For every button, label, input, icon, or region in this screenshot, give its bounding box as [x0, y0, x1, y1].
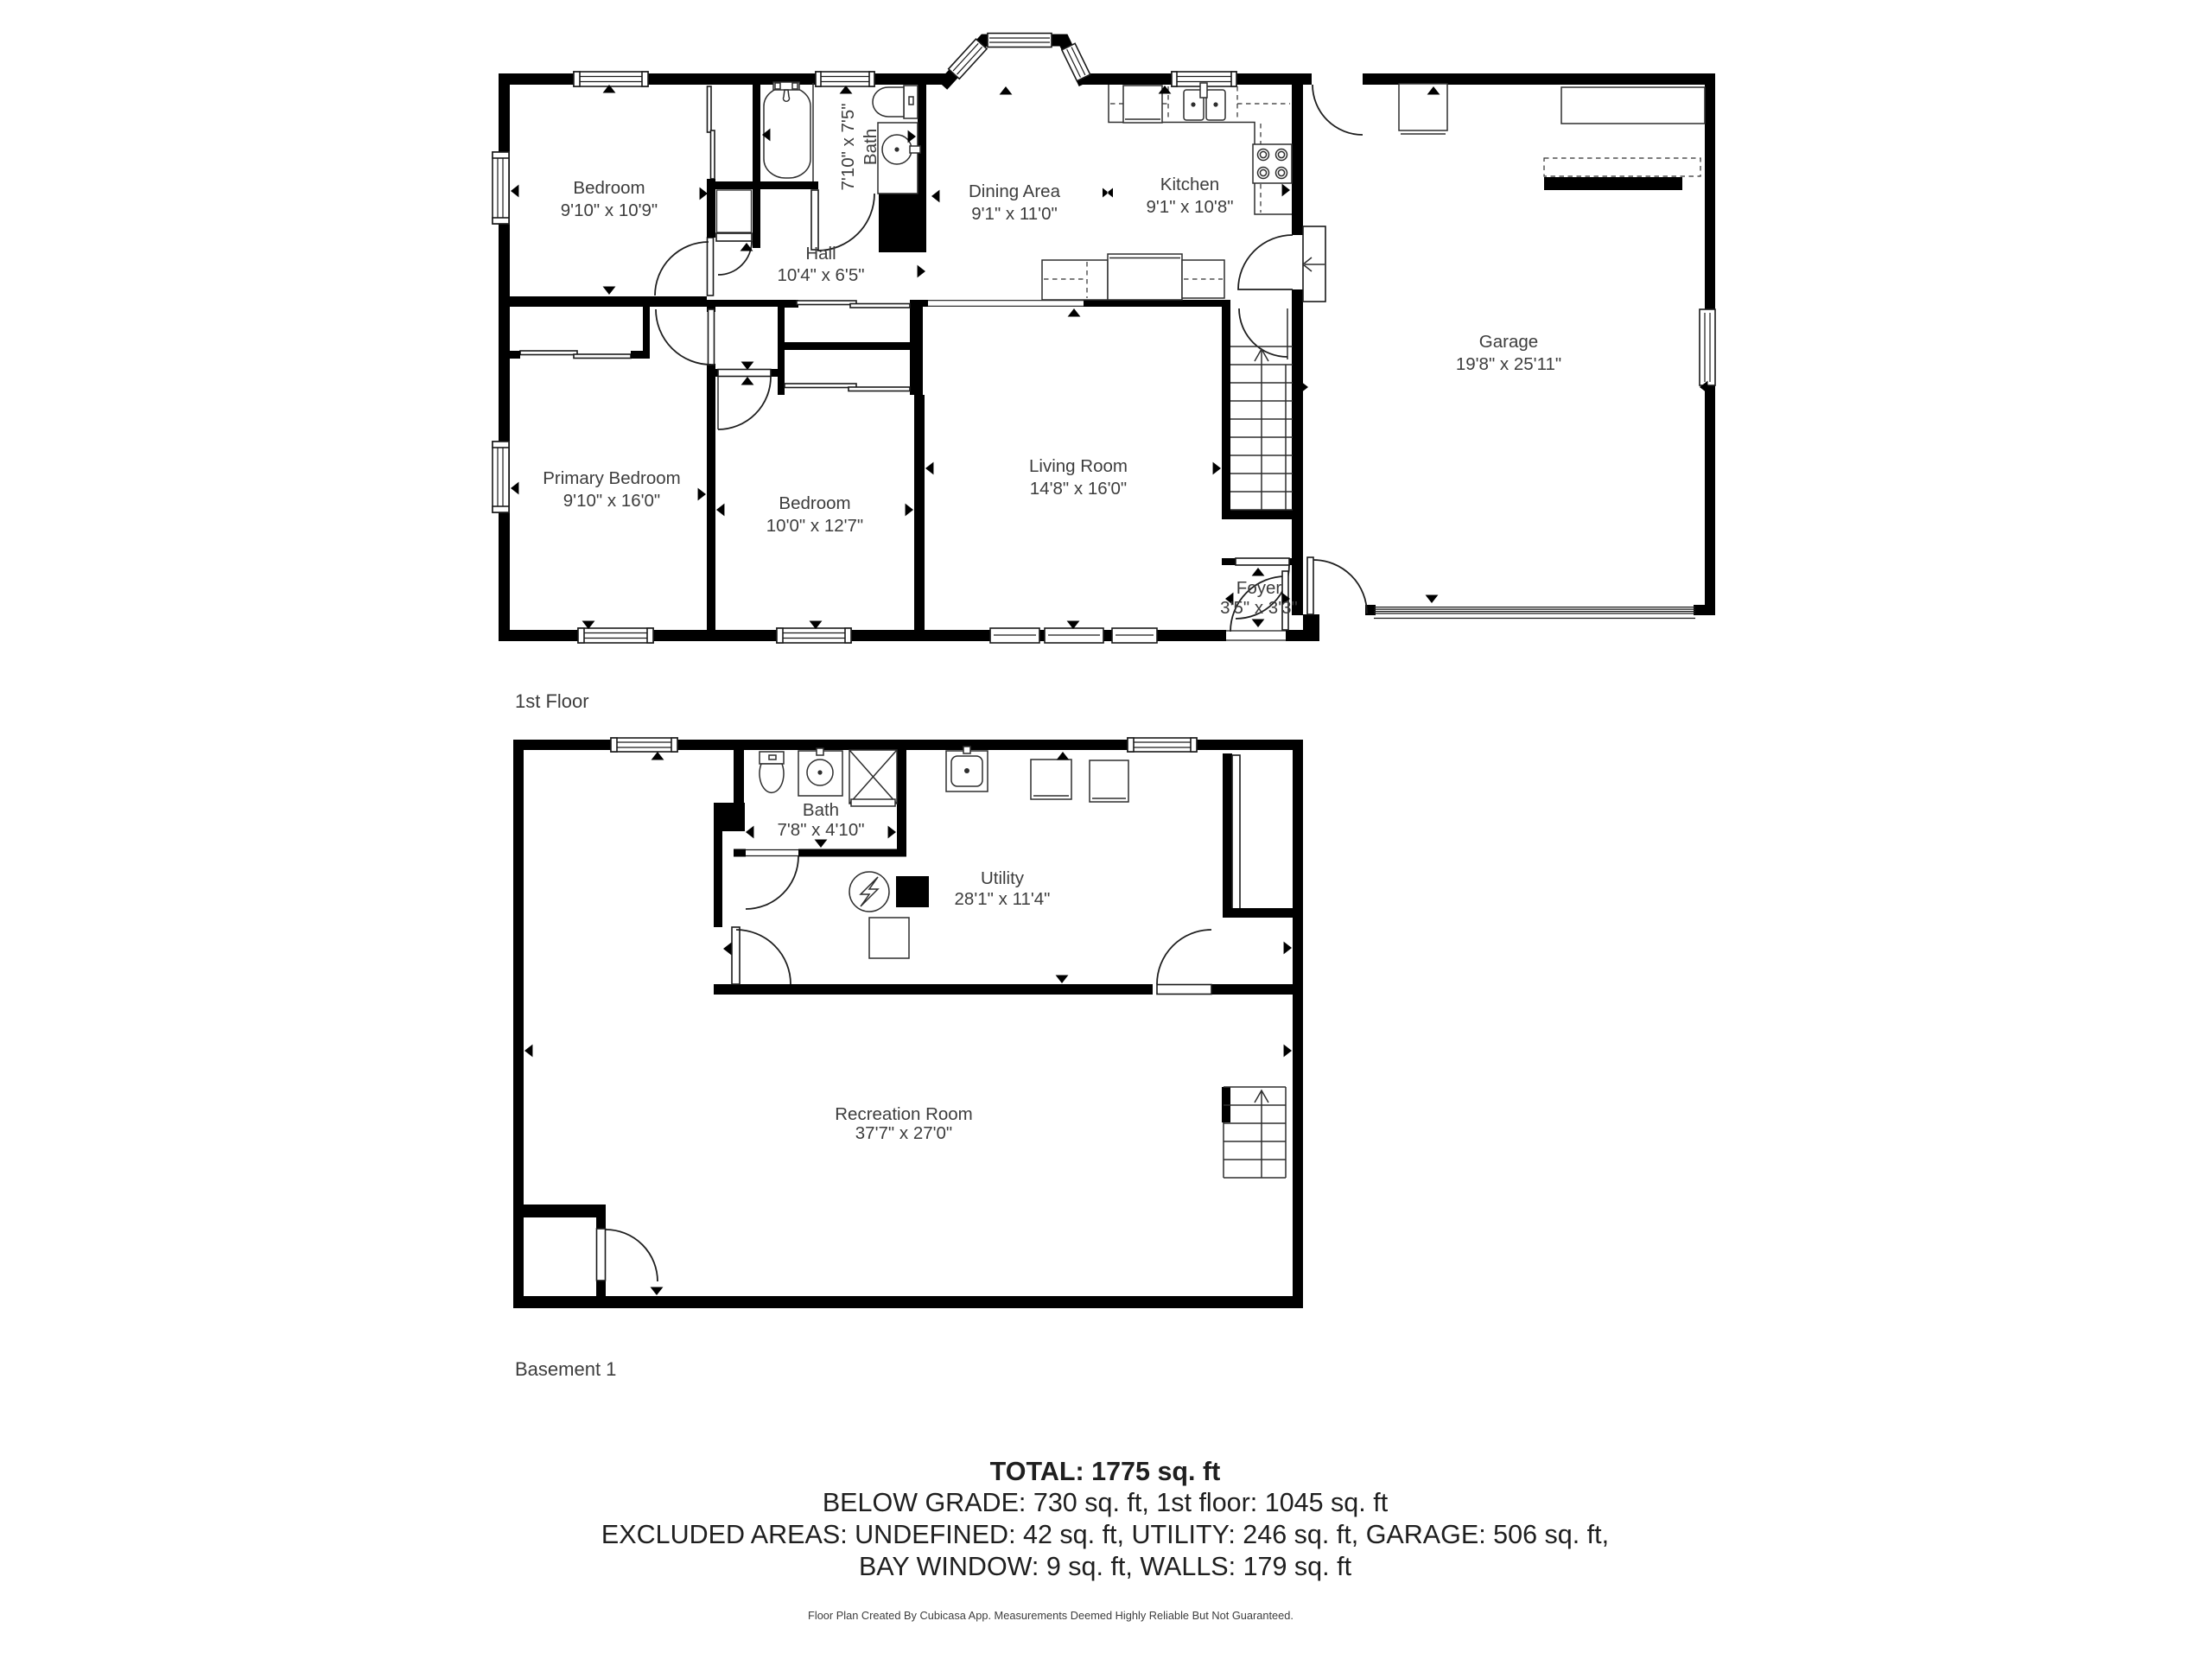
svg-text:Utility: Utility — [981, 868, 1025, 888]
svg-text:7'10" x 7'5": 7'10" x 7'5" — [838, 103, 858, 190]
svg-text:10'0" x 12'7": 10'0" x 12'7" — [766, 516, 863, 536]
svg-text:BAY WINDOW: 9 sq. ft, WALLS: 1: BAY WINDOW: 9 sq. ft, WALLS: 179 sq. ft — [859, 1552, 1352, 1581]
svg-text:14'8" x 16'0": 14'8" x 16'0" — [1030, 479, 1127, 499]
svg-text:3'5" x 3'3": 3'5" x 3'3" — [1220, 598, 1298, 618]
svg-text:Floor Plan Created By Cubicasa: Floor Plan Created By Cubicasa App. Meas… — [808, 1609, 1294, 1622]
svg-text:10'4" x 6'5": 10'4" x 6'5" — [777, 265, 864, 285]
svg-text:Recreation Room: Recreation Room — [835, 1104, 973, 1124]
svg-text:Basement 1: Basement 1 — [515, 1358, 616, 1380]
svg-text:7'8" x 4'10": 7'8" x 4'10" — [777, 820, 864, 840]
svg-text:EXCLUDED AREAS: UNDEFINED: 42: EXCLUDED AREAS: UNDEFINED: 42 sq. ft, UT… — [601, 1520, 1609, 1549]
svg-text:Hall: Hall — [805, 244, 836, 264]
svg-text:Kitchen: Kitchen — [1160, 175, 1219, 194]
svg-text:Bedroom: Bedroom — [779, 493, 850, 513]
svg-text:Primary Bedroom: Primary Bedroom — [543, 468, 681, 488]
svg-text:9'10" x 10'9": 9'10" x 10'9" — [561, 200, 658, 220]
svg-text:Foyer: Foyer — [1236, 578, 1282, 598]
svg-text:Bath: Bath — [861, 129, 880, 165]
svg-text:9'10" x 16'0": 9'10" x 16'0" — [563, 491, 660, 511]
svg-text:19'8" x 25'11": 19'8" x 25'11" — [1456, 354, 1561, 374]
svg-text:Dining Area: Dining Area — [969, 181, 1061, 201]
svg-text:BELOW GRADE: 730 sq. ft, 1st f: BELOW GRADE: 730 sq. ft, 1st floor: 1045… — [823, 1488, 1389, 1517]
svg-text:28'1" x 11'4": 28'1" x 11'4" — [955, 889, 1051, 909]
svg-text:1st Floor: 1st Floor — [515, 690, 589, 712]
svg-text:37'7" x 27'0": 37'7" x 27'0" — [855, 1123, 952, 1143]
svg-text:Bedroom: Bedroom — [573, 178, 645, 198]
svg-text:TOTAL: 1775 sq. ft: TOTAL: 1775 sq. ft — [990, 1457, 1221, 1486]
svg-text:Garage: Garage — [1479, 332, 1538, 352]
svg-text:Bath: Bath — [803, 800, 839, 820]
svg-text:9'1" x 11'0": 9'1" x 11'0" — [971, 204, 1058, 224]
svg-text:9'1" x 10'8": 9'1" x 10'8" — [1146, 197, 1233, 217]
svg-text:Living Room: Living Room — [1029, 456, 1128, 476]
